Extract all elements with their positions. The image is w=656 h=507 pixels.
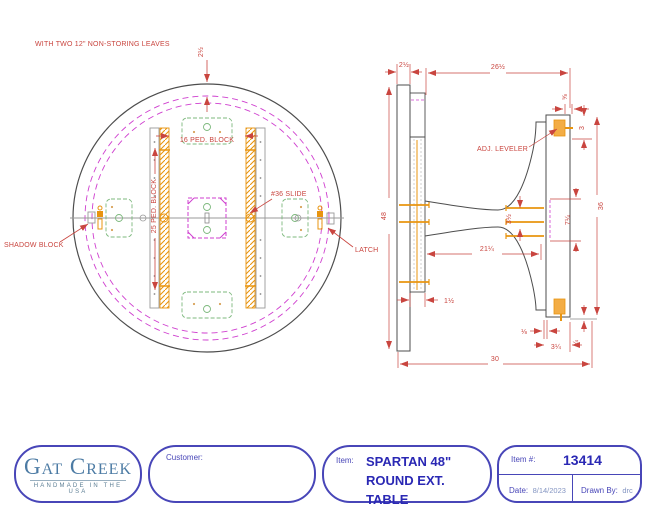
latch-label: LATCH	[355, 247, 378, 254]
dim-leveler-adj: ¼	[573, 340, 580, 346]
dim-spread: 36	[598, 202, 605, 210]
company-logo: Gat Creek	[16, 455, 140, 478]
plan-view: WITH TWO 12" NON-STORING LEAVES 2½ 16 PE…	[4, 41, 378, 352]
dim-height: 30	[491, 356, 499, 363]
shadow-block-leader	[60, 224, 88, 242]
item-name: SPARTAN 48" ROUND EXT. TABLE	[366, 453, 490, 507]
item-number-value: 13414	[563, 452, 602, 468]
dim-hub: 7¼	[565, 215, 572, 225]
item-number-label: Item #:	[511, 455, 535, 464]
tabletop-edge	[397, 85, 410, 351]
drawn-by-cell: Drawn By: drc	[573, 474, 640, 501]
dim-lip: ⅝	[562, 94, 569, 100]
side-view: 2½ 26½ 48 21¼ 1½ 30 3½ 7¼ ⅝ 3 36 ⅛ 3¼ ¼ …	[381, 61, 605, 368]
date-value: 8/14/2023	[533, 486, 566, 495]
item-number-row: Item #: 13414	[499, 447, 640, 475]
title-block: Gat Creek HANDMADE IN THE USA Customer: …	[0, 443, 656, 507]
drawing-sheet: WITH TWO 12" NON-STORING LEAVES 2½ 16 PE…	[0, 0, 656, 507]
date-label: Date:	[509, 486, 528, 495]
shadow-block-label: SHADOW BLOCK	[4, 242, 64, 249]
customer-box[interactable]: Customer:	[148, 445, 316, 503]
logo-box: Gat Creek HANDMADE IN THE USA	[14, 445, 142, 503]
adj-leveler-label: ADJ. LEVELER	[477, 146, 528, 153]
dim-neck: 3½	[505, 214, 513, 224]
customer-label: Customer:	[166, 453, 203, 462]
ped25-label: 25 PED. BLOCK	[151, 179, 158, 233]
drawn-by-value: drc	[622, 486, 632, 495]
item-box: Item: SPARTAN 48" ROUND EXT. TABLE	[322, 445, 492, 503]
item-name-line2: ROUND EXT. TABLE	[366, 472, 490, 507]
item-name-line1: SPARTAN 48"	[366, 453, 490, 472]
dim-band: 1½	[444, 297, 454, 305]
drawn-by-label: Drawn By:	[581, 486, 618, 495]
date-drawn-row: Date: 8/14/2023 Drawn By: drc	[499, 474, 640, 501]
edge-dimension-text: 2½	[197, 47, 205, 57]
item-number-box: Item #: 13414 Date: 8/14/2023 Drawn By: …	[497, 445, 642, 503]
dim-gap: ⅛	[521, 329, 527, 336]
leaves-note: WITH TWO 12" NON-STORING LEAVES	[35, 41, 170, 48]
dim-foot-end: 3¼	[551, 344, 561, 351]
column-top-profile	[425, 122, 546, 210]
date-cell: Date: 8/14/2023	[499, 474, 573, 501]
slide-label: #36 SLIDE	[271, 191, 307, 198]
ped16-label: 16 PED. BLOCK	[180, 137, 234, 144]
company-tagline: HANDMADE IN THE USA	[30, 480, 126, 495]
technical-drawing: WITH TWO 12" NON-STORING LEAVES 2½ 16 PE…	[0, 0, 656, 443]
dim-slide: 21¼	[480, 246, 494, 253]
item-label: Item:	[336, 456, 354, 465]
dim-diameter: 48	[381, 212, 388, 220]
dim-tip: 3	[579, 126, 586, 130]
dim-underside: 26½	[491, 63, 505, 71]
dim-top-thickness: 2½	[399, 61, 409, 69]
